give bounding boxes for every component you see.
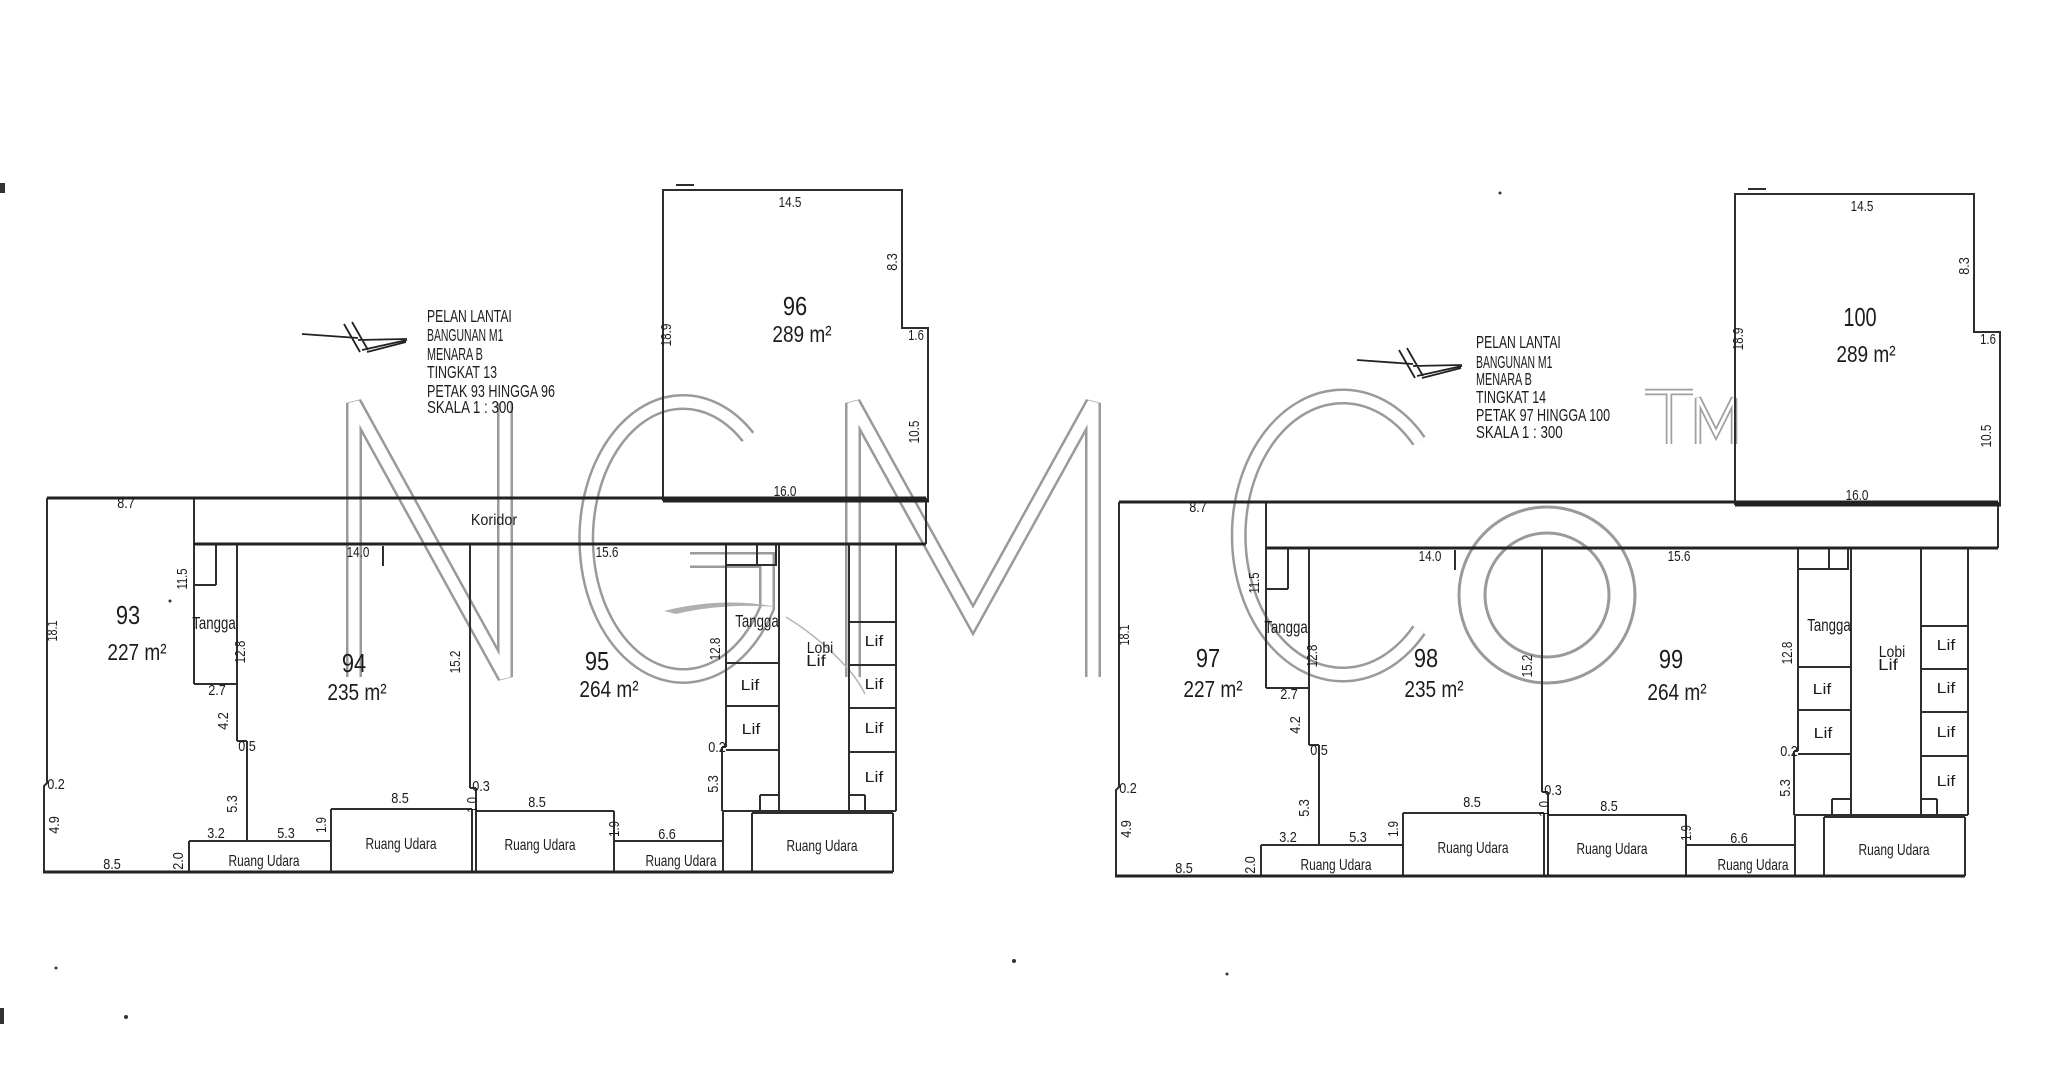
svg-text:SKALA 1 : 300: SKALA 1 : 300 bbox=[1476, 422, 1563, 442]
svg-text:TINGKAT 13: TINGKAT 13 bbox=[427, 362, 497, 382]
svg-text:93: 93 bbox=[116, 600, 140, 630]
svg-text:TINGKAT 14: TINGKAT 14 bbox=[1476, 387, 1546, 407]
svg-text:SKALA 1 : 300: SKALA 1 : 300 bbox=[427, 397, 514, 417]
svg-text:264 m²: 264 m² bbox=[579, 676, 639, 702]
svg-text:MENARA B: MENARA B bbox=[1476, 369, 1532, 389]
svg-text:264 m²: 264 m² bbox=[1647, 679, 1707, 705]
svg-text:289 m²: 289 m² bbox=[772, 321, 832, 347]
svg-text:98: 98 bbox=[1414, 643, 1438, 673]
svg-text:PELAN LANTAI: PELAN LANTAI bbox=[427, 306, 512, 326]
svg-text:BANGUNAN M1: BANGUNAN M1 bbox=[427, 325, 503, 345]
svg-text:227 m²: 227 m² bbox=[107, 639, 167, 665]
svg-text:100: 100 bbox=[1843, 302, 1876, 332]
svg-text:MENARA B: MENARA B bbox=[427, 344, 483, 364]
svg-text:227 m²: 227 m² bbox=[1183, 676, 1243, 702]
svg-text:94: 94 bbox=[342, 648, 366, 678]
svg-text:99: 99 bbox=[1659, 644, 1683, 674]
svg-text:235 m²: 235 m² bbox=[327, 679, 387, 705]
svg-text:97: 97 bbox=[1196, 643, 1220, 673]
svg-text:96: 96 bbox=[783, 291, 807, 321]
svg-text:235 m²: 235 m² bbox=[1404, 676, 1464, 702]
svg-text:289 m²: 289 m² bbox=[1836, 341, 1896, 367]
svg-text:Koridor: Koridor bbox=[471, 512, 518, 529]
svg-text:95: 95 bbox=[585, 646, 609, 676]
svg-text:PELAN LANTAI: PELAN LANTAI bbox=[1476, 332, 1561, 352]
